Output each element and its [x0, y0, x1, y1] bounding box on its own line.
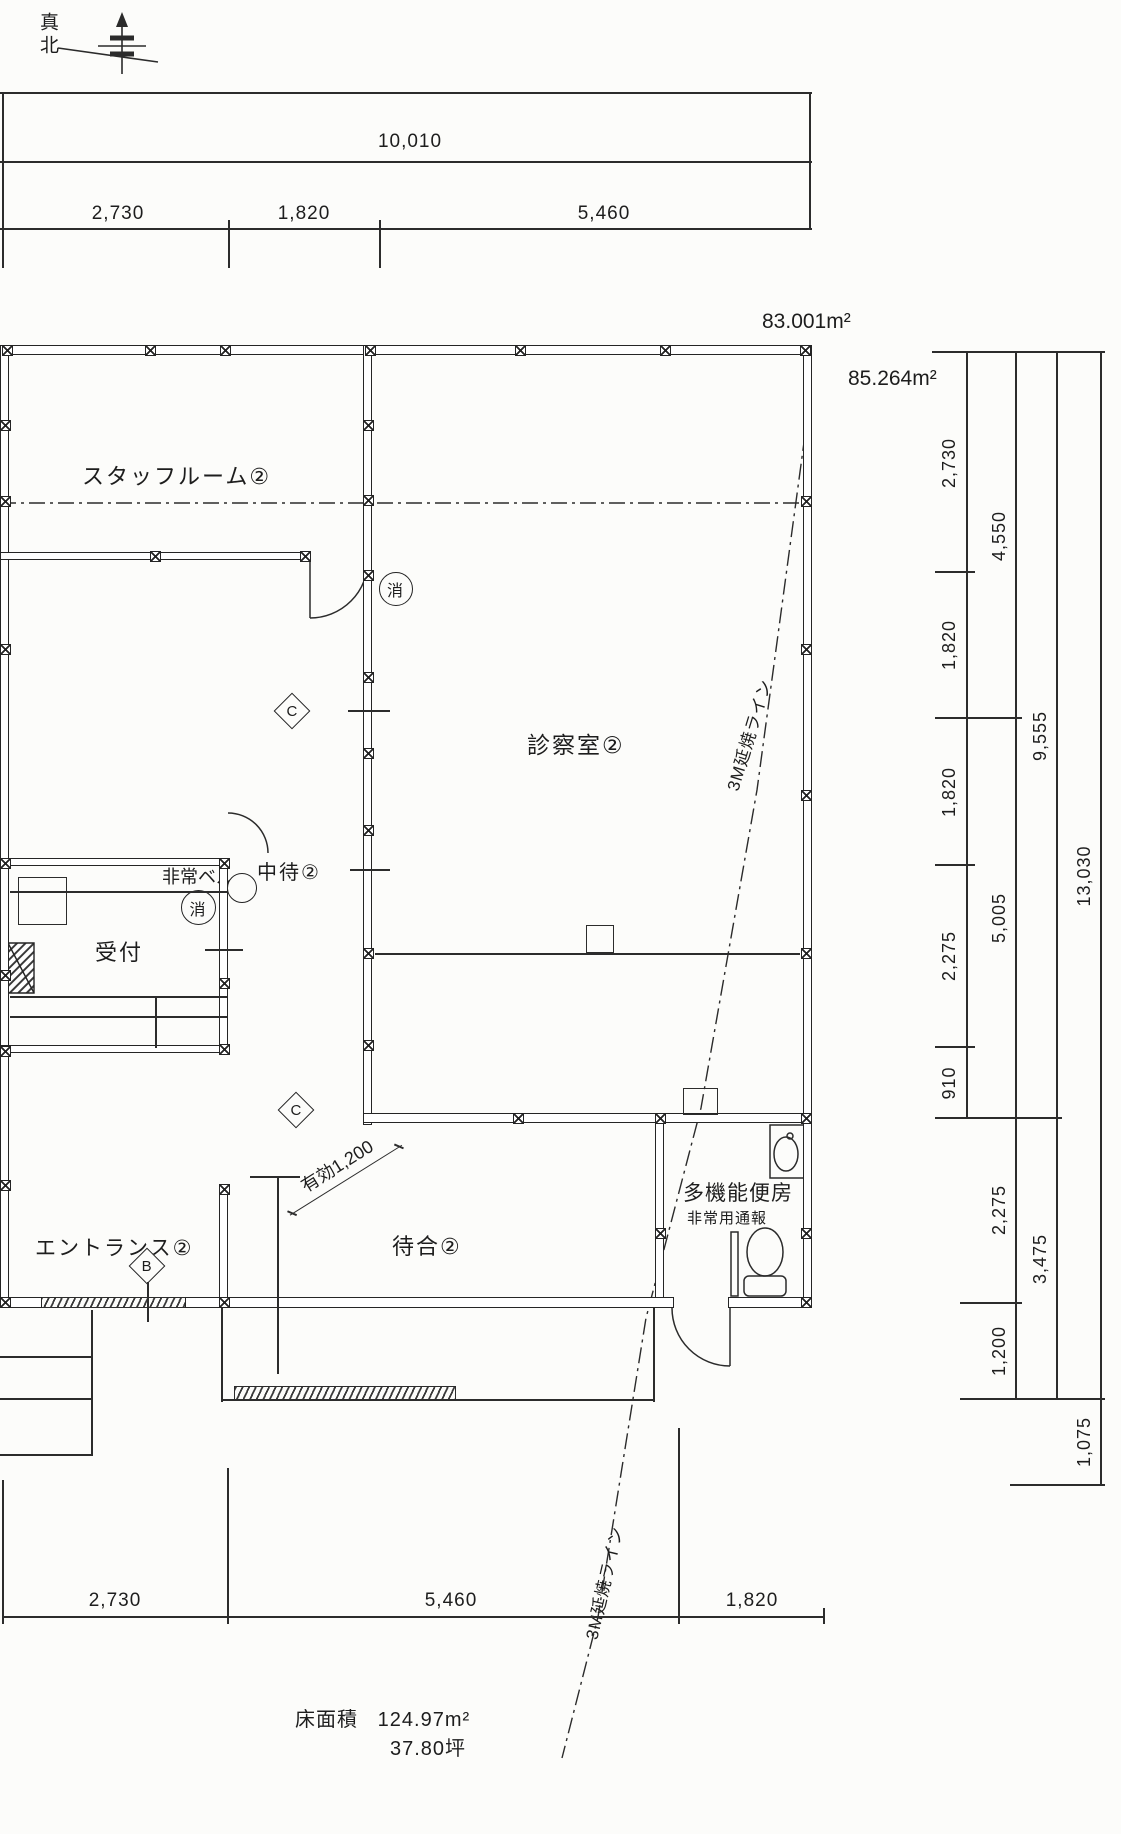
dim-top-seg1: 2,730: [58, 203, 178, 225]
column-marker: [801, 1297, 812, 1308]
column-marker: [801, 1228, 812, 1239]
plan-line: [823, 1608, 825, 1624]
column-marker: [363, 495, 374, 506]
wall-segment: [219, 1184, 228, 1308]
dim-r3-2: 3,475: [1030, 1217, 1050, 1301]
plan-line: [375, 953, 800, 955]
wall-segment: [363, 1113, 812, 1123]
column-marker: [363, 948, 374, 959]
plan-line: [1015, 352, 1017, 1399]
wall-segment: [0, 858, 228, 866]
column-marker: [801, 790, 812, 801]
dim-bottom-2: 5,460: [391, 1590, 511, 1612]
column-marker: [0, 1180, 11, 1191]
column-marker: [219, 1044, 230, 1055]
extinguisher-symbol-1: 消: [379, 572, 413, 606]
wall-segment: [363, 345, 372, 1125]
plan-line: [935, 717, 1022, 719]
wall-segment: [0, 345, 812, 355]
room-label-mid-wait: 中待②: [257, 856, 321, 885]
toilet-door-arc: [672, 1308, 730, 1366]
dim-top-seg3: 5,460: [544, 203, 664, 225]
dim-top-seg2: 1,820: [244, 203, 364, 225]
plan-line: [2, 1480, 4, 1616]
column-marker: [660, 345, 671, 356]
room-label-toilet: 多機能便房: [683, 1177, 793, 1207]
area-label-lower: 85.264m²: [848, 367, 937, 391]
dim-r2-1: 4,550: [989, 494, 1009, 578]
wall-segment: [803, 345, 812, 1308]
plan-line: [0, 92, 812, 94]
plan-line: [1056, 352, 1058, 1399]
plan-line: [221, 1308, 223, 1402]
wall-segment: [728, 1297, 812, 1308]
plan-line: [2, 230, 4, 268]
column-marker: [0, 1297, 11, 1308]
column-marker: [801, 496, 812, 507]
wall-segment: [185, 1297, 674, 1308]
wall-segment: [655, 1113, 664, 1308]
plan-line: [147, 1282, 149, 1322]
bell-symbol-icon: [227, 873, 257, 903]
column-marker: [363, 825, 374, 836]
floor-area-value: 124.97m²: [378, 1709, 471, 1731]
column-marker: [0, 420, 11, 431]
dim-top-total: 10,010: [350, 131, 470, 153]
room-label-entrance: エントランス②: [35, 1232, 193, 1262]
reception-hatch-fixture: [8, 943, 34, 993]
column-marker: [219, 858, 230, 869]
north-compass-icon: [58, 12, 158, 74]
column-marker: [655, 1228, 666, 1239]
plan-line: [10, 996, 227, 998]
column-marker: [0, 970, 11, 981]
dim-r4-1: 13,030: [1074, 834, 1094, 918]
plan-line: [205, 949, 243, 951]
column-marker: [801, 644, 812, 655]
column-marker: [219, 978, 230, 989]
column-marker: [0, 644, 11, 655]
column-marker: [513, 1113, 524, 1124]
north-label: 真北: [34, 12, 61, 58]
dim-r1-5: 910: [939, 1041, 959, 1125]
column-marker: [300, 551, 311, 562]
area-label-upper: 83.001m²: [762, 310, 851, 334]
plan-line: [935, 571, 975, 573]
staff-door-arc: [310, 560, 368, 618]
column-marker: [363, 570, 374, 581]
dim-r2-3: 2,275: [989, 1168, 1009, 1252]
plan-line: [932, 351, 1105, 353]
column-marker: [150, 551, 161, 562]
grid-diamond-c1-letter: C: [287, 703, 298, 720]
fixture-box: [586, 925, 614, 953]
plan-line: [2, 1616, 825, 1618]
plan-line: [277, 1178, 279, 1374]
floor-area-label: 床面積: [295, 1709, 358, 1731]
plan-line: [2, 92, 4, 228]
room-label-exam: 診察室②: [527, 726, 625, 760]
floor-area-note: 床面積 124.97m²: [295, 1703, 470, 1732]
dim-r2-2: 5,005: [989, 876, 1009, 960]
fixture-box: [683, 1088, 718, 1115]
column-marker: [2, 345, 13, 356]
fixture-box: [18, 877, 67, 925]
plan-line: [350, 869, 390, 871]
dim-r1-4: 2,275: [939, 914, 959, 998]
plan-line: [10, 891, 227, 893]
column-marker: [219, 1184, 230, 1195]
column-marker: [219, 1297, 230, 1308]
plan-line: [379, 230, 381, 268]
column-marker: [363, 748, 374, 759]
room-label-staff: スタッフルーム②: [82, 459, 271, 491]
plan-line: [935, 1117, 1062, 1119]
column-marker: [515, 345, 526, 356]
plan-line: [653, 1308, 655, 1402]
plan-line: [0, 161, 812, 163]
plan-line: [809, 92, 811, 228]
plan-line: [0, 1454, 92, 1456]
dim-r2-4: 1,200: [989, 1309, 1009, 1393]
plan-line: [155, 996, 157, 1048]
column-marker: [363, 1040, 374, 1051]
column-marker: [145, 345, 156, 356]
column-marker: [220, 345, 231, 356]
column-marker: [801, 948, 812, 959]
grid-diamond-b-letter: B: [142, 1257, 152, 1274]
plan-line: [0, 228, 812, 230]
column-marker: [0, 496, 11, 507]
wall-segment: [0, 345, 9, 1308]
toilet-fixture-icon: [731, 1228, 786, 1296]
plan-line: [228, 230, 230, 268]
room-label-reception: 受付: [95, 935, 143, 967]
plan-line: [0, 1398, 92, 1400]
toilet-alarm-label: 非常用通報: [687, 1207, 767, 1228]
sink-icon: [770, 1125, 805, 1178]
plan-line: [935, 864, 975, 866]
wall-segment: [219, 858, 228, 1053]
plan-line: [91, 1310, 93, 1456]
dim-bottom-3: 1,820: [692, 1590, 812, 1612]
column-marker: [801, 1113, 812, 1124]
column-marker: [0, 858, 11, 869]
plan-line: [250, 1176, 300, 1178]
floor-plan-sheet: 真北 10,010 2,730 1,820 5,460 83.001m² 85.…: [0, 0, 1121, 1834]
wall-segment: [0, 1045, 228, 1053]
corridor-door-arc: [228, 813, 268, 853]
extinguisher-symbol-2: 消: [181, 890, 216, 925]
plan-line: [348, 710, 390, 712]
dim-r4-2: 1,075: [1074, 1400, 1094, 1484]
plan-line: [935, 1046, 975, 1048]
dim-r1-1: 2,730: [939, 421, 959, 505]
plan-line: [10, 1016, 227, 1018]
plan-line: [960, 1398, 1105, 1400]
plan-line: [966, 352, 968, 1118]
entrance-sill-hatch: [40, 1297, 187, 1308]
plan-line: [960, 1302, 1022, 1304]
plan-line: [221, 1399, 655, 1401]
plan-line: [1010, 1484, 1105, 1486]
plan-line: [227, 1468, 229, 1616]
dim-r1-2: 1,820: [939, 603, 959, 687]
column-marker: [363, 672, 374, 683]
dim-r3-1: 9,555: [1030, 694, 1050, 778]
plan-line: [1100, 352, 1102, 1485]
grid-diamond-c2-letter: C: [291, 1102, 302, 1119]
dim-bottom-1: 2,730: [55, 1590, 175, 1612]
room-label-waiting: 待合②: [392, 1229, 462, 1261]
floor-area-tsubo: 37.80坪: [390, 1732, 466, 1761]
column-marker: [363, 420, 374, 431]
column-marker: [800, 345, 811, 356]
column-marker: [0, 1046, 11, 1057]
column-marker: [365, 345, 376, 356]
plan-line: [0, 1356, 92, 1358]
plan-line: [678, 1428, 680, 1616]
column-marker: [655, 1113, 666, 1124]
dim-r1-3: 1,820: [939, 750, 959, 834]
